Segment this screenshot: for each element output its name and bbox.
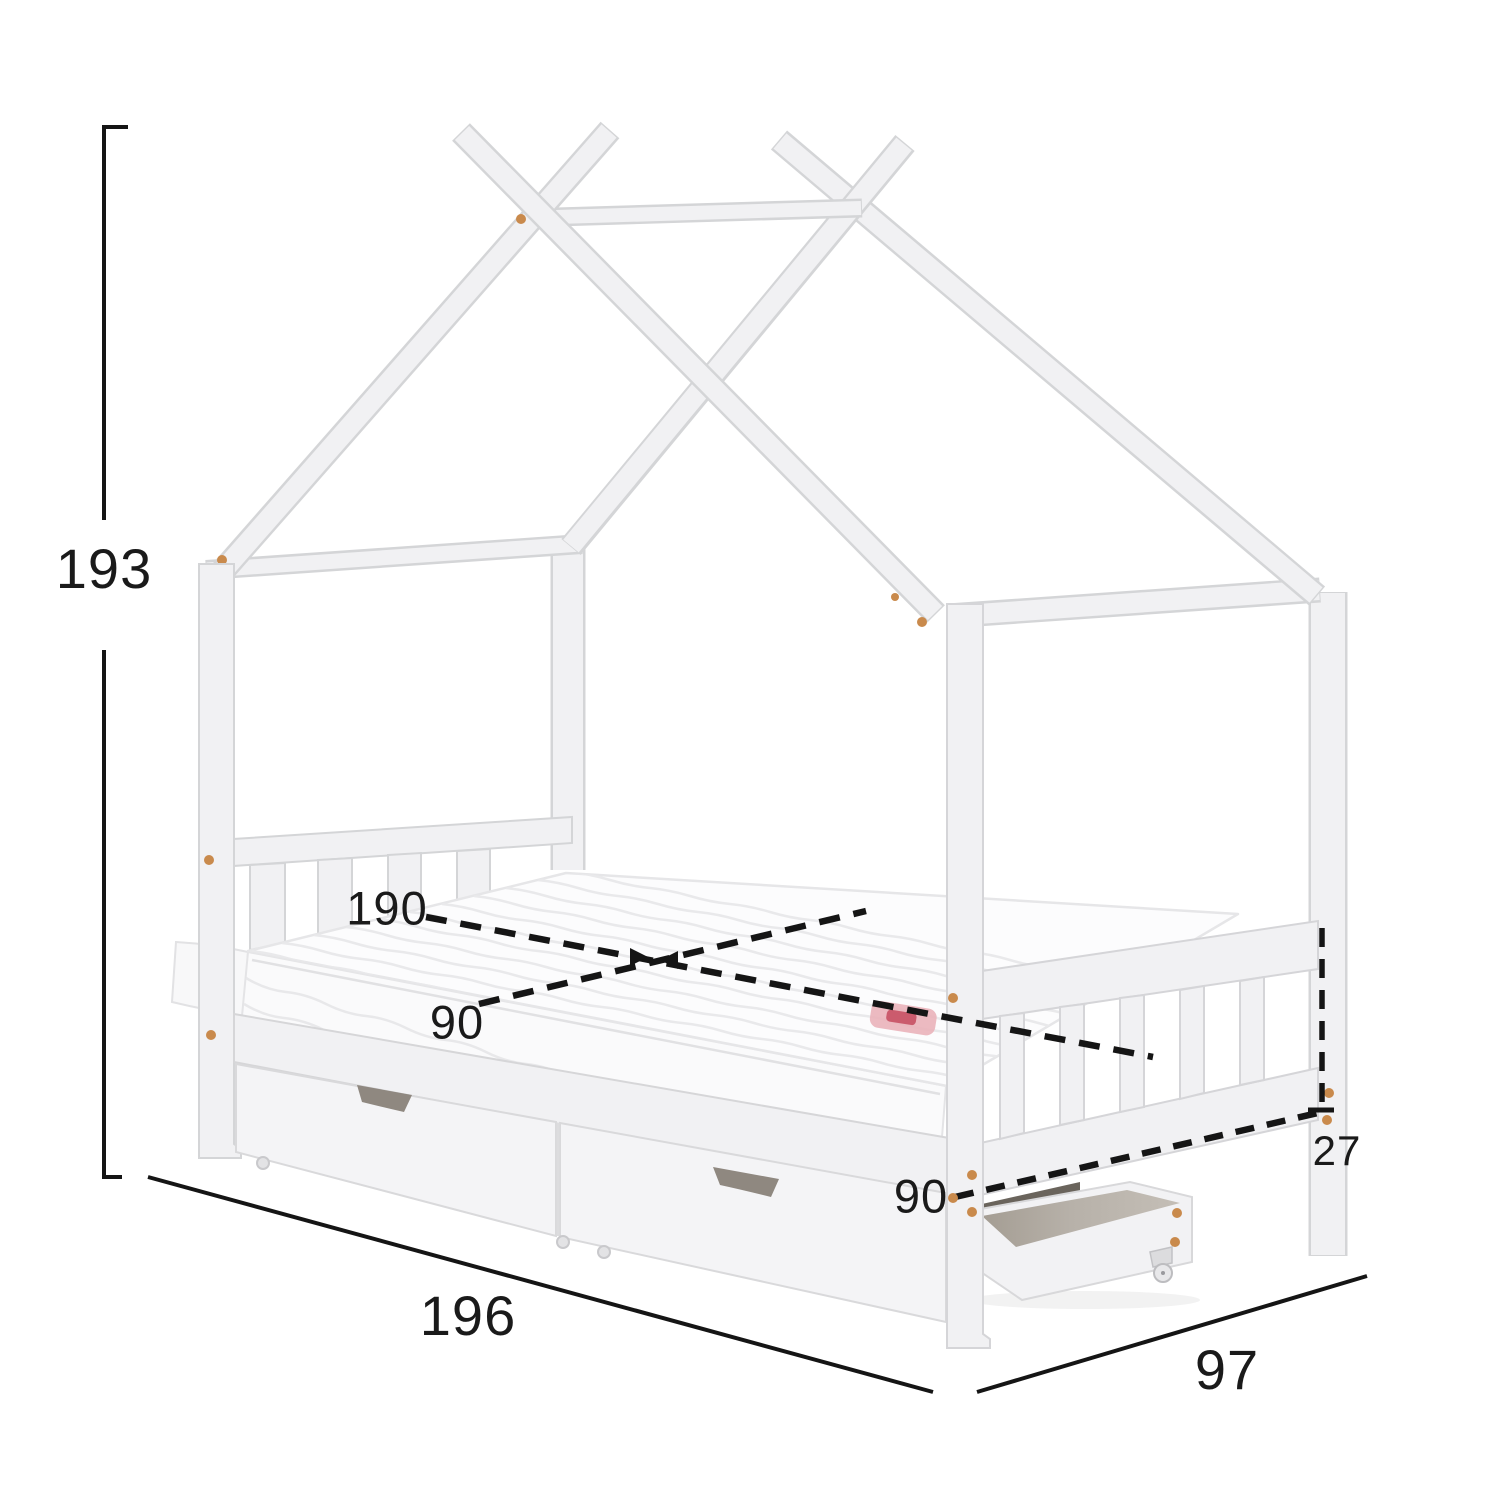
mattress-length-dimension-label: 190	[346, 885, 427, 932]
mattress-width-dimension-label: 90	[430, 999, 484, 1046]
length-dimension-label: 196	[420, 1288, 516, 1344]
front-right-post	[947, 604, 990, 1348]
bed-illustration	[0, 0, 1499, 1500]
pull-out-drawer	[970, 1182, 1200, 1309]
height-dimension-line	[104, 127, 128, 1177]
depth-dimension-label: 97	[1195, 1342, 1259, 1398]
side-height-dimension-label: 27	[1313, 1130, 1362, 1172]
product-dimension-diagram: 193 196 97 190 90 90 27	[0, 0, 1499, 1500]
height-dimension-label: 193	[56, 541, 152, 597]
base-width-dimension-label: 90	[894, 1173, 948, 1220]
front-left-post	[199, 564, 241, 1158]
